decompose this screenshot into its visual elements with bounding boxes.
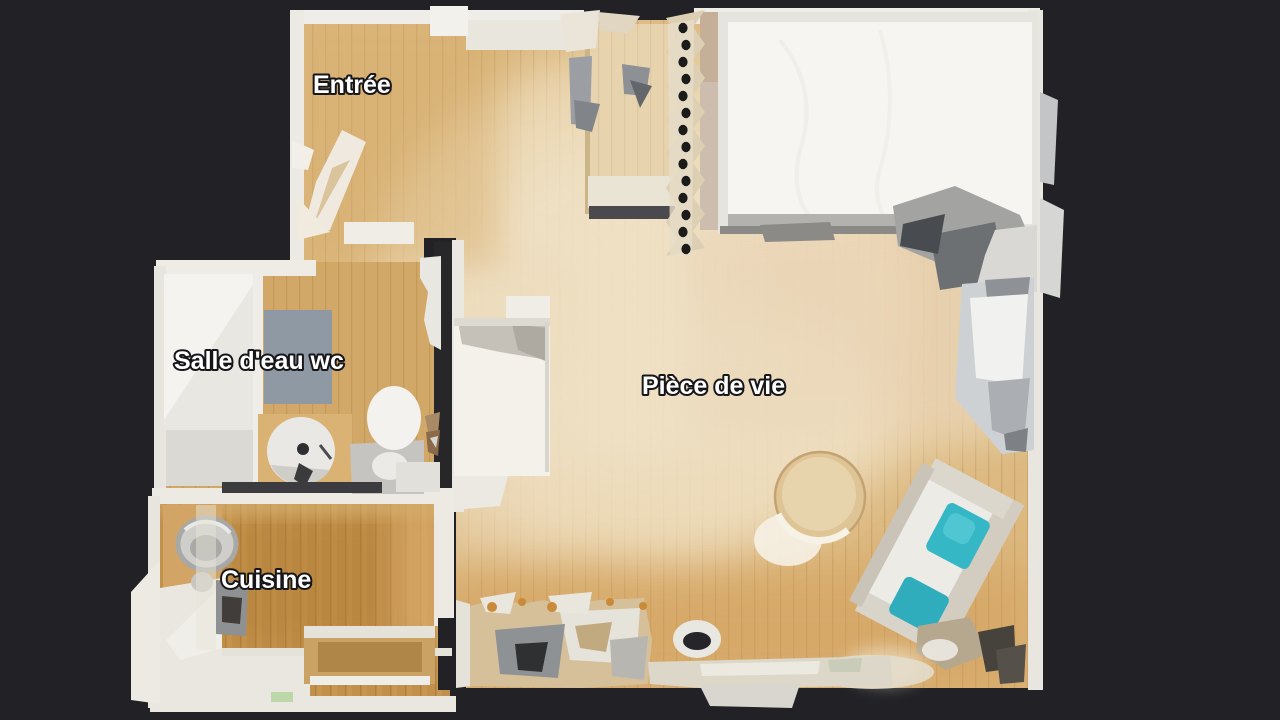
- svg-text:Entrée: Entrée: [313, 71, 391, 99]
- svg-text:Salle d'eau wc: Salle d'eau wc: [174, 347, 344, 375]
- svg-text:Pièce de vie: Pièce de vie: [642, 372, 785, 400]
- svg-text:Cuisine: Cuisine: [221, 566, 311, 594]
